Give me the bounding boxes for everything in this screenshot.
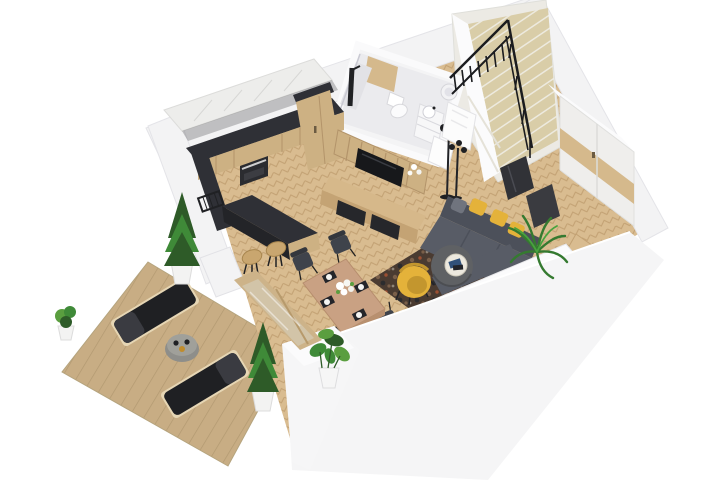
leaf [350,282,354,286]
flower [416,169,421,174]
washer-lid [445,88,454,97]
pouf-coffee-table [431,245,473,287]
side-table-surface [167,334,197,356]
plant-pot [319,368,339,388]
flower [343,279,350,286]
shrub-foliage [60,316,72,328]
floor-plan-render [0,0,725,480]
coat-hook [449,144,455,150]
flower [411,164,417,170]
pantry-handle [314,126,317,133]
flower [408,171,413,176]
cup [184,339,189,344]
coat-hook [456,140,462,146]
bowl [179,346,185,352]
flower [341,289,348,296]
cup [173,340,178,345]
flower [348,286,354,292]
leaf [336,290,340,294]
flower [336,282,344,290]
plate [326,274,332,280]
shower-column [350,68,352,106]
plate [358,284,364,290]
wardrobe-handle [592,152,595,158]
floor-plan-canvas [0,0,725,480]
plate [324,299,330,305]
book [453,265,463,271]
plate [356,312,362,318]
plant-pot [58,326,74,340]
faucet [433,107,436,110]
armchair-cushion [407,276,427,294]
plant-pot [252,390,274,411]
coat-hook [461,147,467,153]
